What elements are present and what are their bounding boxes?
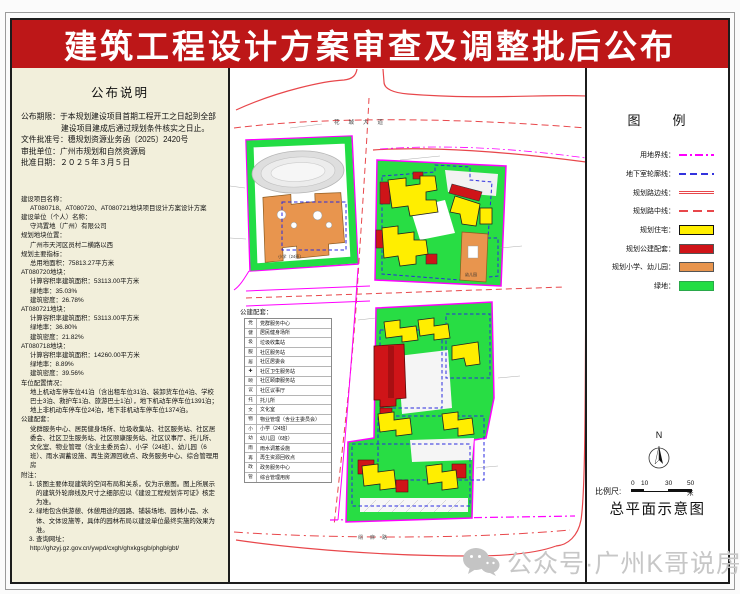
scale-tick: 30 (665, 480, 672, 487)
compass-icon (639, 440, 679, 476)
plan-title: 总平面示意图 (587, 498, 728, 519)
school-block: 小学（24班） (246, 136, 358, 271)
facility-row: 幼幼儿园（6班） (245, 434, 331, 444)
detail-line: 车位配置情况： (21, 379, 219, 388)
legend-row: 规划路中线： (587, 202, 728, 221)
facility-icon: 管 (245, 473, 257, 483)
facility-row: 党党群服务中心 (245, 319, 331, 329)
detail-line: 广州市天河区员村二横路以西 (21, 241, 219, 250)
north-arrow: N (639, 430, 679, 480)
facility-label: 垃圾收集站 (257, 339, 331, 346)
content-area: 公布说明 公布期限：于本规划建设项目首期工程开工之日起到全部建设项目建成后通过规… (12, 68, 728, 582)
facility-label: 雨水调蓄设施 (257, 445, 331, 452)
detail-line: 计算容积率建筑面积：53113.00平方米 (21, 314, 219, 323)
facility-row: ✚社区卫生服务站 (245, 367, 331, 377)
detail-line: 规划地块位置： (21, 231, 219, 240)
publication-row: 批准日期：２０２５年３月５日 (21, 157, 219, 169)
facility-icon: 物 (245, 415, 257, 424)
publication-row: 审批单位：广州市规划和自然资源局 (21, 146, 219, 158)
facility-table-heading: 公建配套： (240, 306, 273, 316)
road-label-bottom: 绢麻路 (358, 534, 394, 541)
facility-label: 文化室 (257, 406, 331, 413)
facility-icon: 再 (245, 453, 257, 462)
detail-line: AT080718、AT080720、AT080721地块项目设计方案设计方案 (21, 204, 219, 213)
watermark: 公众号·广州K哥说房 (462, 544, 740, 580)
school-label: 小学（24班） (278, 253, 304, 260)
notice-heading: 公布说明 (21, 82, 219, 101)
facility-row: 居社区居委会 (245, 357, 331, 367)
facility-icon: 服 (245, 348, 257, 357)
facility-label: 再生资源回收点 (257, 454, 331, 461)
watermark-text: 公众号·广州K哥说房 (507, 544, 740, 580)
legend-rows: 用地界线： 地下室轮廓线： 规划路边线： 规划路中线： 规划住宅： 规划公建配套… (587, 146, 728, 296)
road-label-top: 花城大道 (334, 118, 392, 126)
detail-line: 地上机动车停车位41泊（含出租车位31泊、装卸货车位4泊、学校巴士3泊、救护车1… (21, 388, 219, 416)
facility-icon: 党 (245, 319, 257, 328)
detail-line: http://ghzyj.gz.gov.cn/ywpd/cxgh/ghxkgsg… (21, 544, 219, 553)
facility-icon: 幼 (245, 434, 257, 443)
site-plan-panel: 小学（24班） (230, 68, 585, 582)
facility-row: 议社区议事厅 (245, 386, 331, 396)
facility-label: 党群服务中心 (257, 320, 331, 327)
facility-icon: 雨 (245, 444, 257, 453)
publication-row: 公布期限：于本规划建设项目首期工程开工之日起到全部建设项目建成后通过规划条件核实… (21, 111, 219, 134)
wechat-icon (462, 547, 500, 577)
notice-text-panel: 公布说明 公布期限：于本规划建设项目首期工程开工之日起到全部建设项目建成后通过规… (12, 68, 230, 582)
scale-label: 比例尺: (595, 486, 621, 497)
detail-line: 守鸿置地（广州）有限公司 (21, 222, 219, 231)
facility-row: 雨雨水调蓄设施 (245, 444, 331, 454)
legend-label: 地下室轮廓线： (626, 169, 675, 179)
facility-icon: 居 (245, 357, 257, 366)
detail-line: 绿地率：35.03% (21, 287, 219, 296)
residential-block-north: 幼儿园 (375, 160, 506, 286)
detail-line: 1. 该图主要体现建筑的空间布局和关系，仅为示意图。图上所展示的建筑外轮廓线及尺… (21, 480, 219, 508)
legend-symbol (679, 173, 714, 175)
publication-row-label: 公布期限： (21, 112, 60, 121)
facility-row: 托托儿所 (245, 396, 331, 406)
legend-label: 规划路中线： (633, 206, 675, 216)
legend-symbol (679, 191, 714, 194)
facility-label: 居民健身场所 (257, 329, 331, 336)
legend-label: 用地界线： (640, 150, 675, 160)
detail-line: 建筑密度：39.56% (21, 369, 219, 378)
legend-symbol (679, 154, 714, 156)
detail-line: 附注： (21, 471, 219, 480)
publication-row: 文件批准号：穗规划资源业务函〔2025〕2420号 (21, 134, 219, 146)
detail-line: 公建配套： (21, 415, 219, 424)
facility-row: 圾垃圾收集站 (245, 338, 331, 348)
facility-row: 健居民健身场所 (245, 329, 331, 339)
publication-info: 公布期限：于本规划建设项目首期工程开工之日起到全部建设项目建成后通过规划条件核实… (21, 111, 219, 169)
facility-label: 综合管理用房 (257, 474, 331, 481)
facility-row: 管综合管理用房 (245, 473, 331, 483)
facility-icon: 托 (245, 396, 257, 405)
legend-row: 规划小学、幼儿园： (587, 258, 728, 277)
facility-table: 党党群服务中心 健居民健身场所 圾垃圾收集站 服社区服务站 居社区居委会 ✚社区… (244, 318, 332, 483)
facility-row: 物物业管理（含业主委员会） (245, 415, 331, 425)
detail-line: 建设项目名称： (21, 195, 219, 204)
legend-title: 图 例 (587, 110, 728, 129)
publication-row-label: 文件批准号： (21, 135, 68, 144)
legend-label: 规划公建配套： (626, 244, 675, 254)
facility-label: 社区服务站 (257, 349, 331, 356)
detail-line: AT080721地块： (21, 305, 219, 314)
facility-label: 社区卫生服务站 (257, 368, 331, 375)
facility-label: 物业管理（含业主委员会） (257, 416, 331, 423)
legend-row: 绿地： (587, 277, 728, 296)
facility-label: 社区颐康服务站 (257, 377, 331, 384)
detail-line: 党群服务中心、居民健身场所、垃圾收集站、社区服务站、社区居委会、社区卫生服务站、… (21, 425, 219, 471)
scale-tick: 0 (631, 480, 635, 487)
facility-label: 幼儿园（6班） (257, 435, 331, 442)
kindergarten-label: 幼儿园 (465, 271, 477, 277)
legend-label: 规划路边线： (633, 188, 675, 198)
publication-row-label: 审批单位： (21, 147, 60, 156)
legend-symbol (679, 262, 714, 272)
facility-row: 文文化室 (245, 405, 331, 415)
detail-line: 计算容积率建筑面积：53113.00平方米 (21, 277, 219, 286)
publication-row-label: 批准日期： (21, 158, 60, 167)
legend-panel: 图 例 用地界线： 地下室轮廓线： 规划路边线： 规划路中线： 规划住宅： 规划… (585, 68, 728, 582)
facility-label: 政务服务中心 (257, 464, 331, 471)
detail-line: 3. 查询网址： (21, 535, 219, 544)
north-label: N (639, 430, 679, 440)
facility-icon: 健 (245, 329, 257, 338)
detail-line: 2. 绿地包含供游憩、休憩用途的园路、铺装场地、园林小品、水体、文体设施等，具体… (21, 507, 219, 535)
detail-line: 绿地率：36.80% (21, 323, 219, 332)
project-details: 建设项目名称： AT080718、AT080720、AT080721地块项目设计… (21, 195, 219, 554)
legend-row: 规划路边线： (587, 183, 728, 202)
legend-symbol (679, 210, 714, 212)
facility-row: 再再生资源回收点 (245, 453, 331, 463)
legend-label: 规划小学、幼儿园： (612, 262, 675, 272)
scale-tick: 10 (641, 480, 648, 487)
legend-label: 规划住宅： (640, 225, 675, 235)
publication-row-text: 广州市规划和自然资源局 (60, 147, 146, 156)
public-notice-page: 建筑工程设计方案审查及调整批后公布 公布说明 公布期限：于本规划建设项目首期工程… (0, 0, 740, 594)
detail-line: 建设单位（个人）名称： (21, 213, 219, 222)
detail-line: 规划主要指标： (21, 250, 219, 259)
facility-icon: 政 (245, 463, 257, 472)
facility-row: 服社区服务站 (245, 348, 331, 358)
legend-row: 地下室轮廓线： (587, 165, 728, 184)
publication-row-text: 穗规划资源业务函〔2025〕2420号 (68, 135, 188, 144)
facility-label: 社区居委会 (257, 358, 331, 365)
detail-line: AT080718地块： (21, 342, 219, 351)
detail-line: 总用地面积：75813.27平方米 (21, 259, 219, 268)
legend-row: 规划住宅： (587, 221, 728, 240)
detail-line: 绿地率：8.89% (21, 360, 219, 369)
facility-label: 社区议事厅 (257, 387, 331, 394)
scale-rule (631, 489, 693, 493)
legend-symbol (679, 244, 714, 254)
page-title: 建筑工程设计方案审查及调整批后公布 (64, 20, 676, 68)
title-bar: 建筑工程设计方案审查及调整批后公布 (12, 20, 728, 68)
legend-label: 绿地： (654, 281, 675, 291)
facility-icon: 圾 (245, 338, 257, 347)
facility-label: 小学（24班） (257, 425, 331, 432)
legend-symbol (679, 225, 714, 235)
notice-sheet: 建筑工程设计方案审查及调整批后公布 公布说明 公布期限：于本规划建设项目首期工程… (10, 18, 730, 584)
legend-row: 用地界线： (587, 146, 728, 165)
facility-row: 颐社区颐康服务站 (245, 377, 331, 387)
facility-label: 托儿所 (257, 397, 331, 404)
detail-line: 建筑密度：26.78% (21, 296, 219, 305)
facility-row: 小小学（24班） (245, 425, 331, 435)
facility-icon: ✚ (245, 367, 257, 376)
publication-row-text: 于本规划建设项目首期工程开工之日起到全部建设项目建成后通过规划条件核实之日止。 (60, 112, 216, 133)
detail-line: AT080720地块： (21, 268, 219, 277)
facility-icon: 文 (245, 405, 257, 414)
facility-icon: 议 (245, 386, 257, 395)
facility-row: 政政务服务中心 (245, 463, 331, 473)
facility-icon: 小 (245, 425, 257, 434)
detail-line: 计算容积率建筑面积：14260.00平方米 (21, 351, 219, 360)
publication-row-text: ２０２５年３月５日 (60, 158, 130, 167)
legend-symbol (679, 281, 714, 291)
legend-row: 规划公建配套： (587, 239, 728, 258)
facility-icon: 颐 (245, 377, 257, 386)
detail-line: 建筑密度：21.82% (21, 333, 219, 342)
